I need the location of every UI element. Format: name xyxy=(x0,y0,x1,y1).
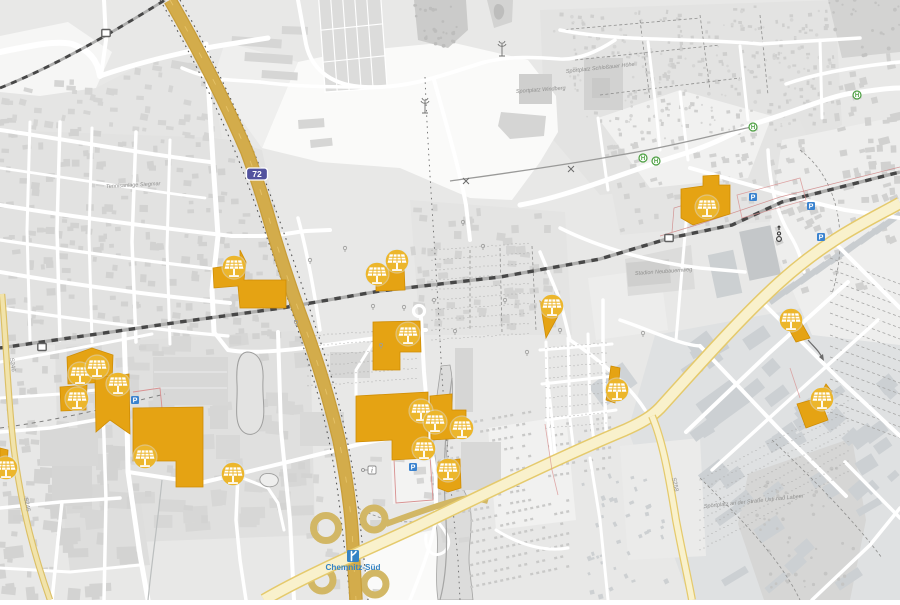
svg-text:Chemnitz-Süd: Chemnitz-Süd xyxy=(325,563,380,572)
svg-text:72: 72 xyxy=(252,169,262,179)
svg-text:i: i xyxy=(371,467,373,475)
